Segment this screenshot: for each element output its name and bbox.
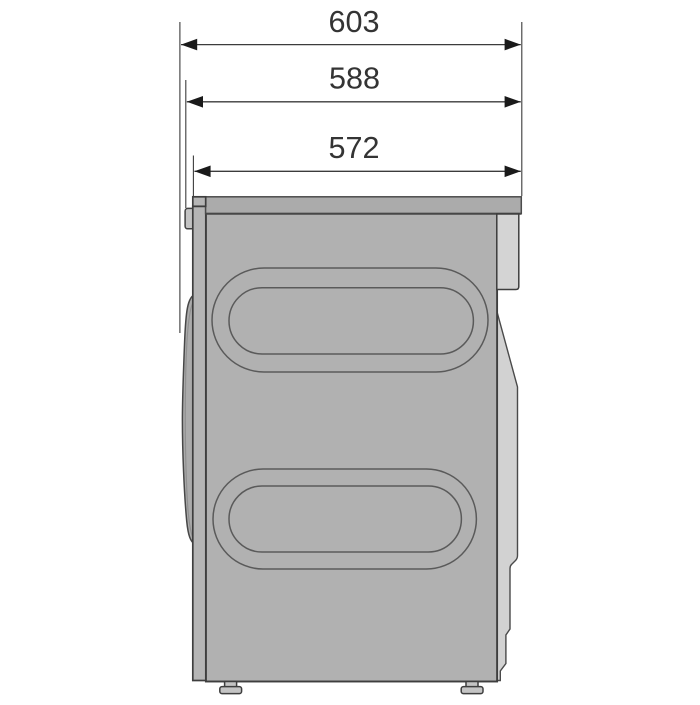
svg-text:588: 588 <box>329 62 380 96</box>
svg-text:603: 603 <box>328 5 379 39</box>
svg-text:572: 572 <box>328 131 379 165</box>
